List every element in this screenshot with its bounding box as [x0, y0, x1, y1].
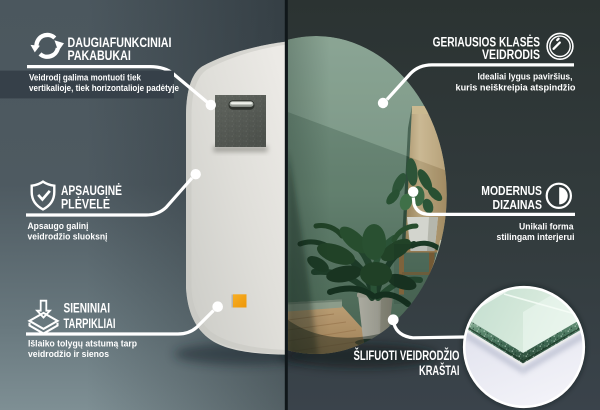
- svg-text:PAKABUKAI: PAKABUKAI: [68, 48, 131, 64]
- svg-text:MODERNUS: MODERNUS: [481, 183, 542, 198]
- svg-text:Išlaiko tolygų atstumą tarp: Išlaiko tolygų atstumą tarp: [28, 339, 137, 350]
- svg-text:ŠLIFUOTI VEIDRODŽIO: ŠLIFUOTI VEIDRODŽIO: [354, 348, 460, 363]
- svg-text:DIZAINAS: DIZAINAS: [493, 197, 543, 212]
- svg-text:veidrodžio ir sienos: veidrodžio ir sienos: [28, 349, 109, 360]
- svg-text:VEIDRODIS: VEIDRODIS: [482, 47, 540, 63]
- svg-text:kuris neiškreipia atspindžio: kuris neiškreipia atspindžio: [456, 83, 576, 94]
- svg-text:Apsaugo galinį: Apsaugo galinį: [28, 221, 89, 232]
- svg-text:Unikali forma: Unikali forma: [519, 221, 574, 232]
- svg-text:vertikalioje, tiek horizontali: vertikalioje, tiek horizontalioje padėty…: [29, 83, 179, 94]
- svg-text:Idealiai lygus paviršius,: Idealiai lygus paviršius,: [478, 71, 573, 82]
- svg-text:stilingam interjerui: stilingam interjerui: [497, 232, 575, 243]
- svg-text:TARPIKLIAI: TARPIKLIAI: [64, 316, 116, 332]
- svg-text:SIENINIAI: SIENINIAI: [64, 301, 111, 317]
- svg-text:Veidrodį galima montuoti tiek: Veidrodį galima montuoti tiek: [29, 72, 142, 83]
- svg-text:veidrodžio sluoksnį: veidrodžio sluoksnį: [28, 232, 108, 243]
- svg-text:PLĖVELĖ: PLĖVELĖ: [61, 196, 110, 213]
- svg-text:KRAŠTAI: KRAŠTAI: [419, 363, 460, 378]
